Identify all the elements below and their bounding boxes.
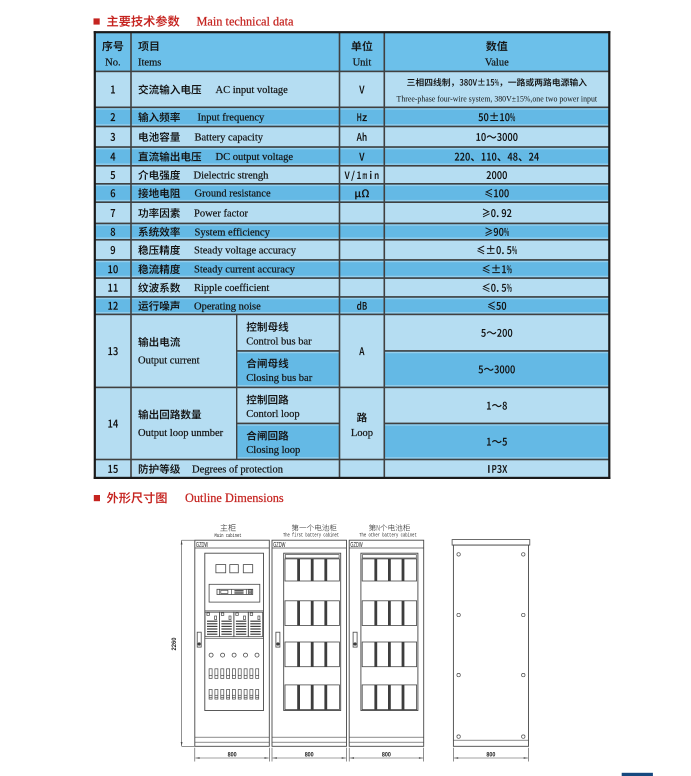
svg-text:The first battery cabinet: The first battery cabinet [283,532,339,539]
svg-text:2260: 2260 [172,637,178,651]
svg-text:GZDW: GZDW [273,540,286,549]
svg-text:DC output voltage: DC output voltage [216,152,294,163]
svg-text:800: 800 [382,752,392,758]
svg-text:Output loop unmber: Output loop unmber [138,428,224,439]
svg-text:Degrees of protection: Degrees of protection [192,464,284,475]
svg-text:Loop: Loop [351,428,373,439]
svg-text:No.: No. [105,58,120,69]
svg-text:Control bus bar: Control bus bar [246,336,312,347]
svg-text:Unit: Unit [353,58,372,69]
svg-text:GZDW: GZDW [350,540,363,549]
svg-text:Main technical data: Main technical data [197,14,295,28]
svg-text:Steady current accuracy: Steady current accuracy [194,265,296,276]
svg-text:800: 800 [486,752,496,758]
svg-text:Dielectric strengh: Dielectric strengh [194,171,270,182]
svg-text:Battery capacity: Battery capacity [195,132,264,143]
svg-text:GZDW: GZDW [196,540,209,549]
svg-text:System efficiency: System efficiency [195,227,271,238]
svg-text:Value: Value [485,58,509,69]
svg-text:Ripple coefficient: Ripple coefficient [194,283,269,294]
svg-text:The other battery cabinet: The other battery cabinet [359,532,417,539]
svg-text:Ground resistance: Ground resistance [195,189,271,200]
svg-text:800: 800 [228,752,238,758]
svg-text:Items: Items [138,58,161,69]
svg-text:Output current: Output current [138,356,200,367]
svg-text:Main cabinet: Main cabinet [215,532,242,539]
svg-text:Power factor: Power factor [194,209,248,220]
svg-text:Input frequency: Input frequency [198,113,266,124]
svg-text:Contorl loop: Contorl loop [246,409,299,420]
svg-text:Steady voltage accuracy: Steady voltage accuracy [194,246,297,257]
svg-text:Closing bus bar: Closing bus bar [246,373,312,384]
svg-text:Closing loop: Closing loop [246,445,300,456]
svg-text:Operating noise: Operating noise [194,301,261,312]
svg-text:800: 800 [305,752,315,758]
svg-text:Three-phase four-wire system,: Three-phase four-wire system, 380V±15%,o… [397,93,598,103]
svg-text:Outline Dimensions: Outline Dimensions [185,491,284,505]
svg-text:AC input voltage: AC input voltage [216,85,289,96]
